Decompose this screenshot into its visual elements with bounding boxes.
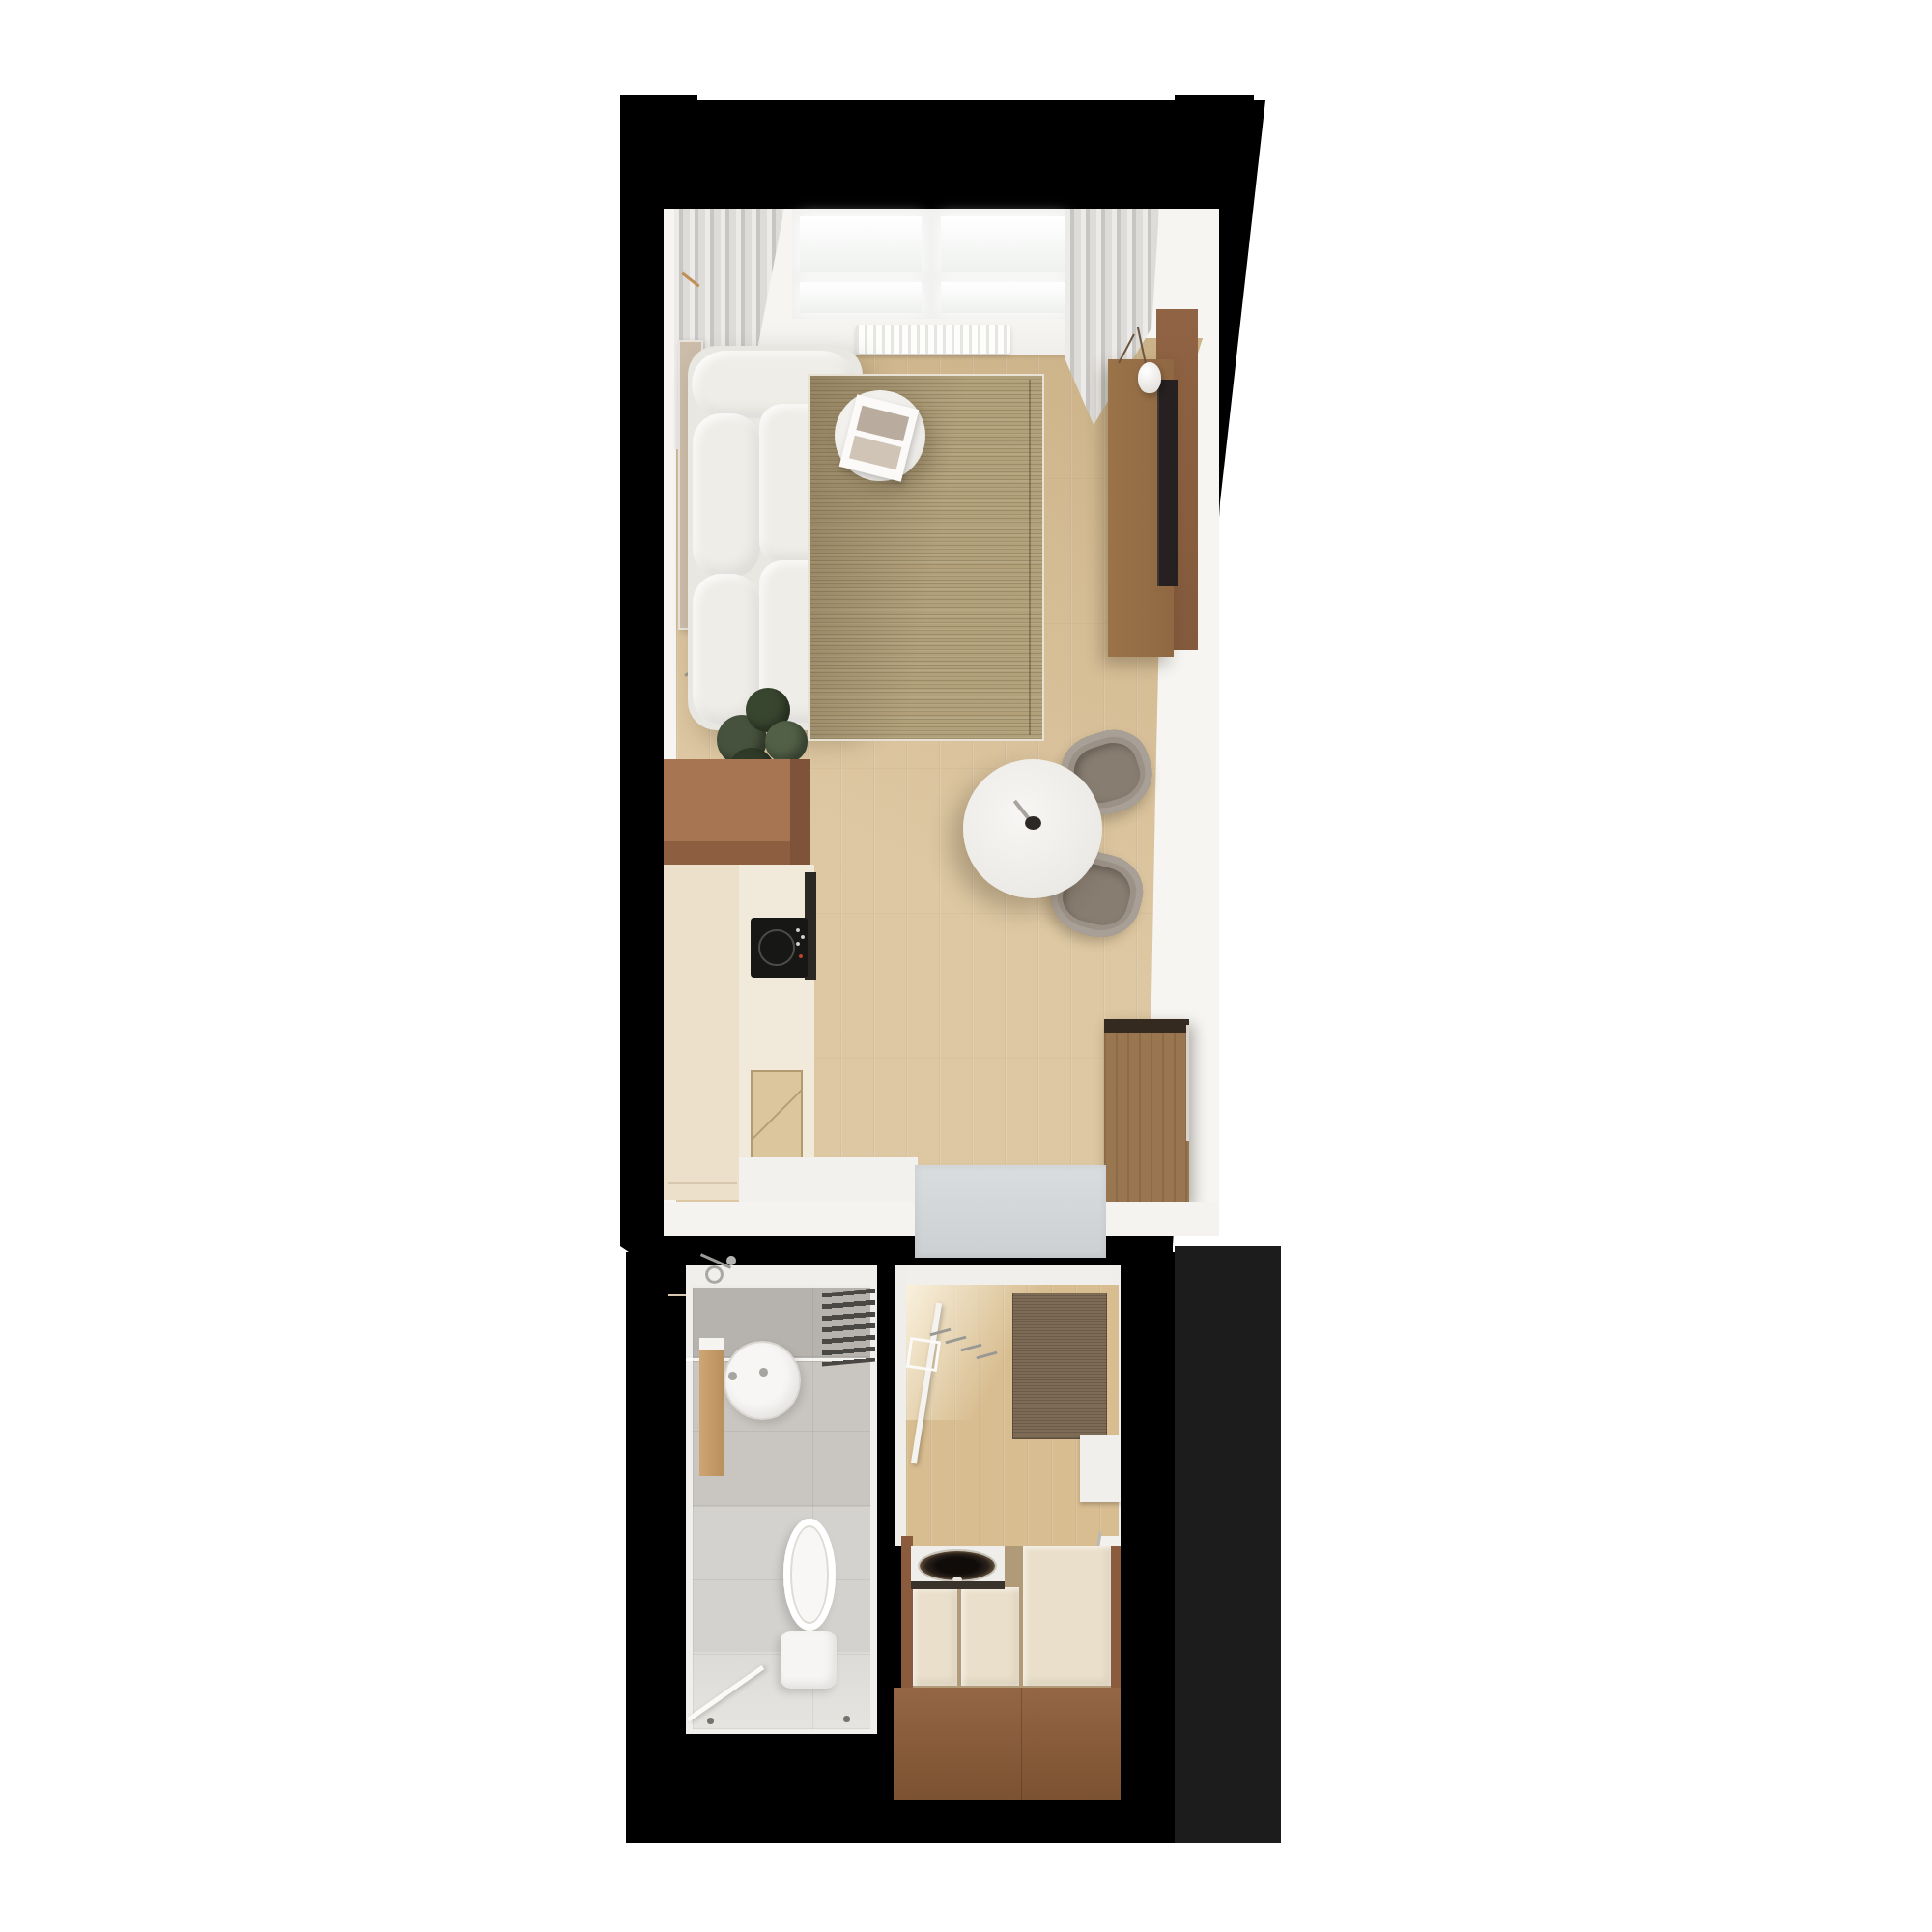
annex-dark-block	[1175, 1246, 1281, 1843]
induction-cooktop	[751, 918, 808, 978]
door-stop	[843, 1716, 850, 1722]
basin-tap	[728, 1372, 737, 1380]
cooktop-control	[801, 935, 805, 939]
toilet-bowl	[783, 1519, 836, 1631]
kitchen-upper-cabinet-side	[790, 759, 810, 865]
vase	[1138, 362, 1161, 393]
kitchen-upper-cabinet	[664, 759, 810, 865]
rug-border-line	[1029, 380, 1031, 735]
window-pane	[800, 282, 922, 313]
window-pane	[941, 282, 1065, 313]
radiator	[856, 325, 1010, 354]
bench-lid	[1023, 1546, 1111, 1686]
cabinet-seam	[668, 1182, 737, 1184]
hallway	[895, 1265, 1121, 1800]
magazine-page	[856, 406, 909, 441]
washbasin	[724, 1341, 801, 1420]
shoe-cabinet-opening	[1104, 1019, 1189, 1033]
toilet-tank	[781, 1631, 837, 1689]
living-room	[664, 209, 1219, 1236]
storage-bench-front	[894, 1688, 1121, 1800]
towel-radiator	[822, 1289, 875, 1367]
shower-head-icon	[705, 1265, 724, 1284]
shower-handle-icon	[726, 1256, 736, 1265]
cooktop-control	[796, 928, 800, 932]
table-bowl	[1025, 816, 1041, 830]
basin-slot	[911, 1581, 1005, 1589]
wall-shelf-unit	[1080, 1435, 1121, 1502]
cooktop-indicator	[799, 954, 803, 958]
kitchen-base-cabinet	[664, 865, 741, 1200]
door-stop	[707, 1718, 714, 1724]
hallway-top-wall	[895, 1265, 1121, 1287]
bench-side-right	[1111, 1546, 1121, 1688]
window	[792, 209, 1072, 321]
kitchen-sink	[751, 1070, 803, 1161]
cooktop-control	[796, 942, 800, 946]
bench-lid	[961, 1587, 1019, 1686]
hallway-rug	[1012, 1293, 1107, 1439]
clothes-hanger-icon	[906, 1337, 941, 1372]
cooktop-burner	[758, 929, 795, 966]
floor-plan-stage	[0, 0, 1932, 1932]
tv-screen	[1157, 380, 1178, 586]
sofa-back-cushion	[693, 413, 760, 578]
vanity-top	[699, 1338, 724, 1350]
shoe-cabinet	[1104, 1019, 1189, 1203]
shoe-cabinet-edge	[1186, 1025, 1189, 1141]
vanity-cabinet	[699, 1338, 724, 1476]
basin-tap	[759, 1368, 768, 1377]
hallway-left-wall	[895, 1265, 906, 1546]
shower-tray-edge	[693, 1285, 870, 1288]
window-pane	[941, 216, 1065, 272]
bathroom	[686, 1265, 877, 1734]
bench-front-seam	[1021, 1688, 1022, 1800]
bench-lid	[913, 1587, 957, 1686]
door-mat	[915, 1165, 1106, 1258]
window-pane	[800, 216, 922, 272]
magazine-page	[849, 436, 901, 469]
